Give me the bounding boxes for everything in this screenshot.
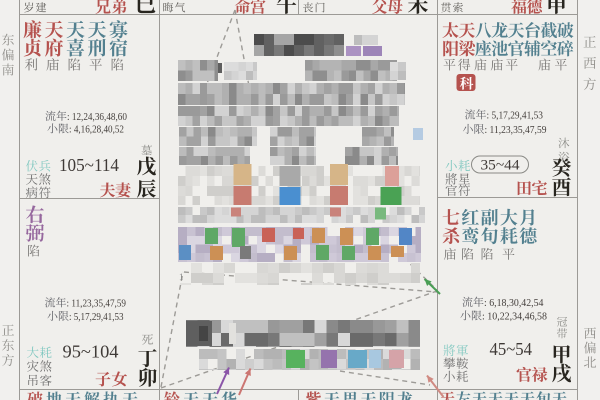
svg-text:: 4,16,28,40,52: : 4,16,28,40,52 — [69, 124, 124, 136]
svg-text:: 11,23,35,47,59: : 11,23,35,47,59 — [67, 298, 127, 310]
svg-text:: 11,23,35,47,59: : 11,23,35,47,59 — [485, 124, 547, 136]
svg-text:: 6,18,30,42,54: : 6,18,30,42,54 — [484, 297, 544, 309]
svg-text:: 5,17,29,41,53: : 5,17,29,41,53 — [69, 311, 124, 323]
svg-text:: 5,17,29,41,53: : 5,17,29,41,53 — [487, 110, 544, 122]
svg-text:105~114: 105~114 — [59, 155, 119, 175]
svg-text:35~44: 35~44 — [481, 158, 521, 174]
svg-text:95~104: 95~104 — [63, 342, 119, 362]
svg-text:45~54: 45~54 — [490, 339, 533, 359]
svg-text:: 12,24,36,48,60: : 12,24,36,48,60 — [67, 111, 127, 123]
svg-text:: 10,22,34,46,58: : 10,22,34,46,58 — [482, 311, 547, 323]
svg-text:1: 1 — [179, 272, 184, 282]
